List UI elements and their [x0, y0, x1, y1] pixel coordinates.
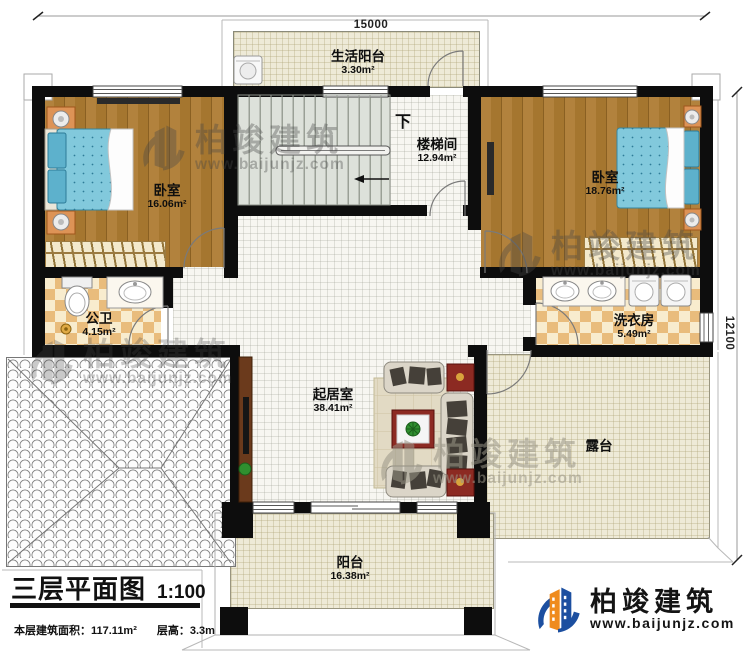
wardrobe-right — [584, 237, 698, 268]
title-underline — [10, 603, 200, 608]
wardrobe-left — [45, 241, 166, 268]
floor-plan-canvas: 生活阳台 3.30m² 下 楼梯间 12.94m² 卧室 16.06m² 卧室 … — [0, 0, 750, 658]
label-bedroom-right: 卧室 18.76m² — [585, 171, 624, 197]
title-block: 三层平面图 1:100 — [11, 569, 206, 606]
plan-scale: 1:100 — [157, 582, 206, 604]
stair-treads — [238, 95, 390, 205]
dimension-right: 12100 — [723, 316, 735, 350]
company-logo-icon — [533, 582, 583, 638]
label-bedroom-left: 卧室 16.06m² — [147, 184, 186, 210]
floor-height-label: 层高： — [157, 625, 190, 637]
label-stairwell: 楼梯间 12.94m² — [417, 138, 458, 164]
plan-title: 三层平面图 — [11, 569, 146, 606]
floor-area-value: 117.11m² — [91, 625, 137, 637]
company-name: 柏竣建筑 — [590, 588, 735, 616]
label-balcony: 阳台 16.38m² — [330, 556, 369, 582]
lower-roof — [6, 357, 236, 567]
title-info: 本层建筑面积：117.11m²层高：3.3m — [14, 622, 215, 638]
label-laundry: 洗衣房 5.49m² — [614, 314, 655, 340]
label-bathroom: 公卫 4.15m² — [82, 312, 115, 338]
company-logo: 柏竣建筑 www.baijunjz.com — [533, 582, 735, 638]
label-living-balcony: 生活阳台 3.30m² — [331, 50, 385, 76]
floor-height-value: 3.3m — [190, 625, 215, 637]
label-terrace: 露台 — [586, 440, 613, 455]
dimension-top: 15000 — [354, 19, 388, 31]
company-website: www.baijunjz.com — [590, 616, 735, 631]
floor-area-label: 本层建筑面积： — [14, 625, 91, 637]
label-stair-direction: 下 — [395, 108, 411, 132]
label-living-room: 起居室 38.41m² — [313, 388, 354, 414]
